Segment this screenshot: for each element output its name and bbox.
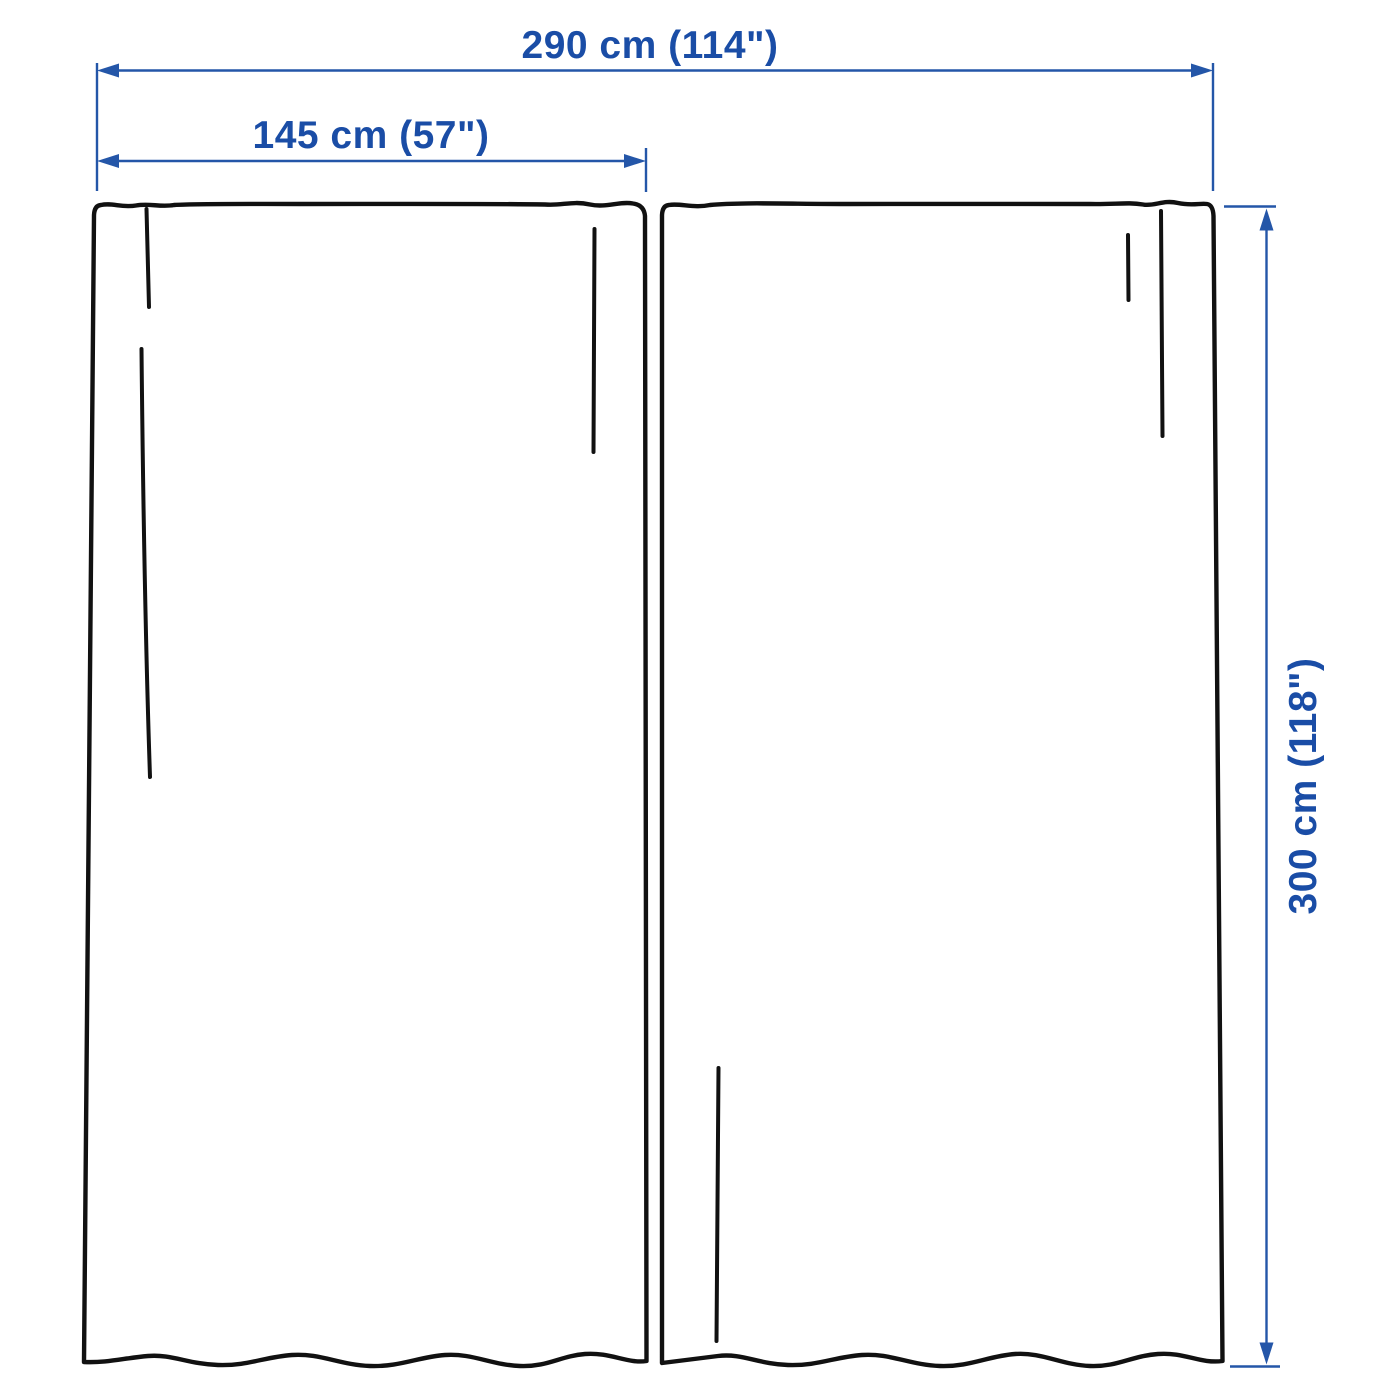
- diagram-canvas: 290 cm (114") 145 cm (57") 300 cm (118"): [0, 0, 1400, 1400]
- curtain-panel-left-outline: [84, 203, 647, 1366]
- dimension-total-width: 290 cm (114"): [97, 24, 1213, 191]
- dimension-height: 300 cm (118"): [1224, 207, 1325, 1367]
- dimension-label-height: 300 cm (118"): [1282, 658, 1325, 915]
- dimension-panel-width: 145 cm (57"): [97, 114, 646, 192]
- curtain-panel-right: [662, 202, 1223, 1366]
- arrowhead-left-icon: [97, 64, 119, 78]
- curtain-dimension-diagram: 290 cm (114") 145 cm (57") 300 cm (118"): [0, 0, 1400, 1400]
- arrowhead-right-icon: [624, 154, 646, 168]
- arrowhead-up-icon: [1260, 209, 1274, 231]
- fold-line: [717, 1068, 719, 1341]
- fold-line: [594, 229, 595, 452]
- fold-line: [1161, 211, 1163, 436]
- arrowhead-down-icon: [1260, 1343, 1274, 1365]
- fold-line: [147, 209, 150, 307]
- dimension-label-panel-width: 145 cm (57"): [253, 114, 490, 157]
- fold-line: [1128, 235, 1129, 300]
- dimension-label-total-width: 290 cm (114"): [522, 24, 779, 67]
- curtain-panel-left: [84, 203, 647, 1366]
- arrowhead-right-icon: [1191, 64, 1213, 78]
- curtain-panel-right-outline: [662, 202, 1223, 1366]
- arrowhead-left-icon: [97, 154, 119, 168]
